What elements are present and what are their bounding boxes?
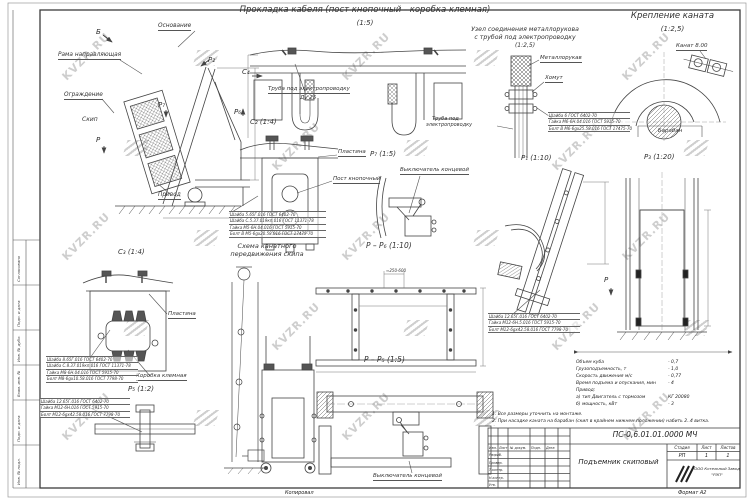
c2-post: Пост кнопочный [333, 176, 380, 184]
c2-parts-list: Шайба 5.65Г.016 ГОСТ 6402-70Шайба С.5.37… [229, 211, 326, 238]
company-name-1: ООО Котельный Завод [694, 466, 740, 471]
pp5-label: P – P₅ (1:5) [364, 356, 405, 365]
pp5-section-drawing [305, 382, 505, 477]
pp6-dim: ≈250-600 [386, 269, 406, 274]
tb-sig-utv: Утв. [489, 483, 496, 487]
cable-du-label: Ду 25 [300, 95, 316, 101]
label-kanat: Канат 8.00 [676, 43, 707, 51]
p1-parts-list: Шайба 12.65Г.016 ГОСТ 6402-70Гайка М12-6… [488, 313, 580, 333]
uzel-truba-2: электропроводку [426, 123, 472, 129]
cable-scale: (1:5) [330, 19, 400, 27]
tb-hdr-podp: Подп. [531, 446, 541, 450]
uzel-view-drawing [466, 52, 581, 162]
label-khomut: Хомут [545, 75, 563, 83]
company-name-2: "РЭП" [694, 472, 740, 477]
p3-label: P₃ (1:20) [644, 153, 674, 161]
uzel-title-1: Узел соединения металлорукова [445, 26, 605, 33]
stage-header: Стадия [668, 445, 696, 450]
doc-name: Подъемник скиповый [572, 458, 665, 466]
note-1: 1. Все размеры уточнить на монтаже. [492, 412, 709, 419]
note-2: 2. При насадке каната на барабан (скип в… [492, 419, 709, 426]
p1-label: P₁ (1:10) [521, 154, 551, 162]
p5-parts-list: Шайба 12.65Г.016 ГОСТ 6402-70Гайка М12-6… [40, 398, 130, 418]
tb-hdr-data: Дата [546, 446, 555, 450]
tb-hdr-dokum: № докум. [510, 446, 526, 450]
tb-hdr-izm: Изм. [489, 446, 497, 450]
sheet-value: 1 [698, 453, 715, 459]
margin-label-soglasovano: Согласовано [16, 256, 21, 282]
kopiroval-label: Копировал [285, 490, 314, 496]
sheets-header: Листов [717, 445, 739, 450]
mark-p2: P₂ [208, 56, 215, 64]
p7-vykl: Выключатель концевой [400, 167, 469, 175]
pp6-label: P – P₆ (1:10) [366, 242, 412, 251]
margin-label-inv-podl: Инв. № подл. [16, 458, 21, 485]
tb-hdr-list: Лист [499, 446, 507, 450]
label-privod: Привод [158, 192, 181, 200]
doc-number: ПС-0,6.01.01.0000 МЧ [572, 430, 738, 439]
p3-view-drawing [612, 170, 712, 352]
sheet-header: Лист [698, 445, 715, 450]
c3-parts-list: Шайба 8.65Г.016 ГОСТ 6402-70Шайба С.8.37… [46, 356, 138, 383]
label-skip: Скип [82, 117, 98, 124]
c2-label: C₂ (1:4) [250, 118, 277, 126]
stage-value: РП [668, 453, 696, 459]
cable-title: Прокладка кабеля (пост кнопочный - короб… [230, 6, 500, 16]
mark-p7: P₇ [158, 101, 165, 109]
mark-c4: C₄ [242, 68, 250, 76]
p5-label: P₅ (1:2) [128, 385, 154, 393]
p7-label: P₇ (1:5) [370, 150, 396, 158]
pp5-vykl: Выключатель концевой [373, 473, 442, 481]
mark-p6: P₆ [234, 108, 241, 116]
p1-view-drawing [487, 168, 612, 318]
drawing-sheet: KVZR.RUKVZR.RUKVZR.RUKVZR.RUKVZR.RUKVZR.… [0, 0, 750, 500]
uzel-title-2: с трубой под электропроводку [445, 34, 605, 41]
kreplenie-scale: (1:2,5) [600, 25, 745, 33]
label-ograzhdenie: Ограждение [64, 92, 103, 100]
margin-label-vzam-inv: Взам. инв. № [16, 371, 21, 397]
label-metallorukav: Металлорукав [540, 55, 582, 63]
p1-mark-p: P [604, 276, 608, 284]
sheets-value: 1 [717, 453, 739, 459]
margin-label-podp-data-1: Подп. и дата [16, 300, 21, 327]
c2-plastina: Пластина [338, 149, 366, 157]
mark-b: Б [96, 28, 101, 36]
c3-korobka: Коробка клемная [136, 373, 187, 381]
label-rama: Рама направляющая [58, 52, 121, 60]
tb-sig-razrab: Разраб. [489, 453, 502, 457]
label-osnovanie: Основание [158, 23, 191, 31]
tb-sig-nkontr: Н.контр. [489, 476, 504, 480]
c3-label: C₃ (1:4) [118, 248, 145, 256]
c3-plastina: Пластина [168, 311, 196, 319]
margin-label-podp-data-2: Подп. и дата [16, 415, 21, 442]
label-baraban: Барабан [638, 128, 702, 134]
shema-title-2: передвижения скипа [222, 251, 312, 258]
margin-label-inv-dubl: Инв. № дубл. [16, 335, 21, 362]
uzel-scale: (1:2,5) [445, 43, 605, 50]
format-label: Формат А2 [678, 490, 706, 496]
tb-sig-prover: Провер. [489, 461, 503, 465]
tb-sig-tkontr: Т.контр. [489, 468, 503, 472]
uzel-parts-list: Шайба 6 ГОСТ 6402-70Гайка М6-6Н.04.016 Г… [548, 112, 630, 132]
tech-block: Объем куба- 0,7 Грузоподъемность, т- 1,0… [576, 360, 736, 409]
cable-tube-label: Труба под электропроводку [268, 86, 350, 94]
mark-p: P [96, 136, 100, 144]
kreplenie-title: Крепление каната [600, 12, 745, 22]
notes-block: 1. Все размеры уточнить на монтаже. 2. П… [492, 412, 709, 426]
